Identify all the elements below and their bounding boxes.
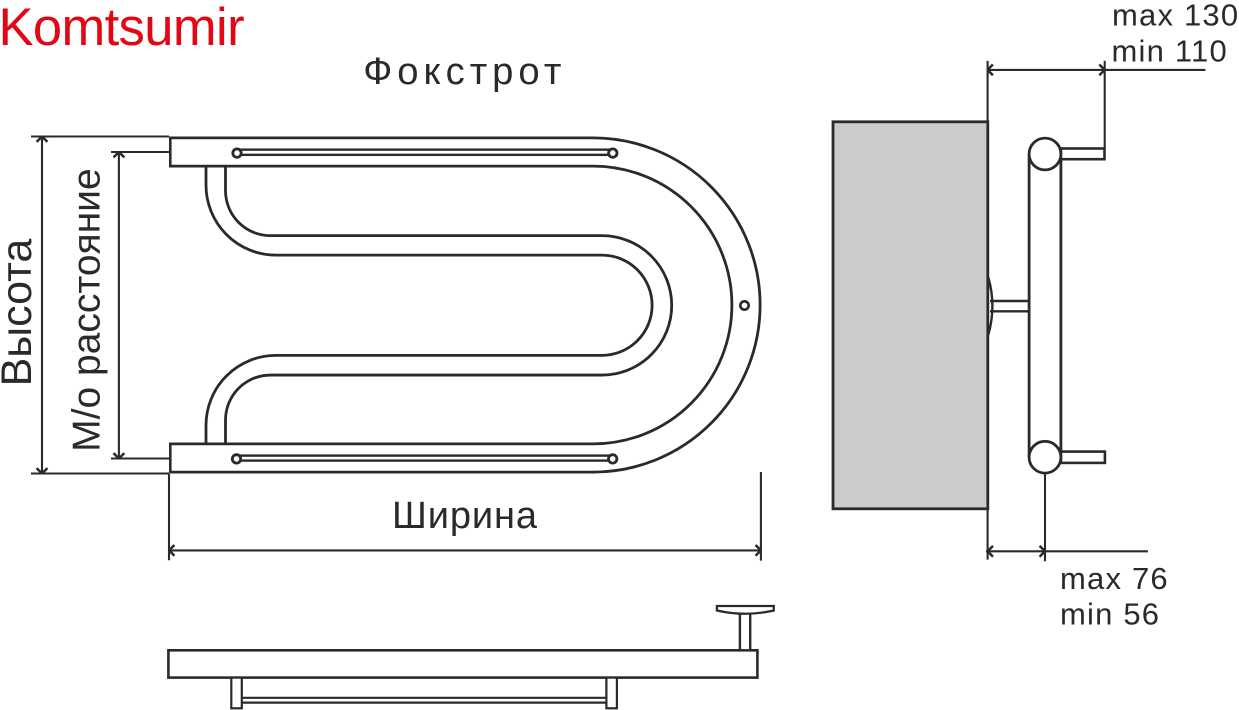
svg-text:min 110: min 110 [1112,33,1228,68]
svg-text:Фокстрот: Фокстрот [363,50,566,93]
svg-text:Komtsumir: Komtsumir [0,0,244,57]
svg-text:Ширина: Ширина [392,495,538,537]
svg-text:min 56: min 56 [1060,596,1160,631]
svg-text:max 76: max 76 [1060,561,1169,596]
svg-text:М/о расстояние: М/о расстояние [66,168,109,451]
svg-text:Высота: Высота [0,239,41,387]
svg-text:max 130: max 130 [1112,0,1239,32]
